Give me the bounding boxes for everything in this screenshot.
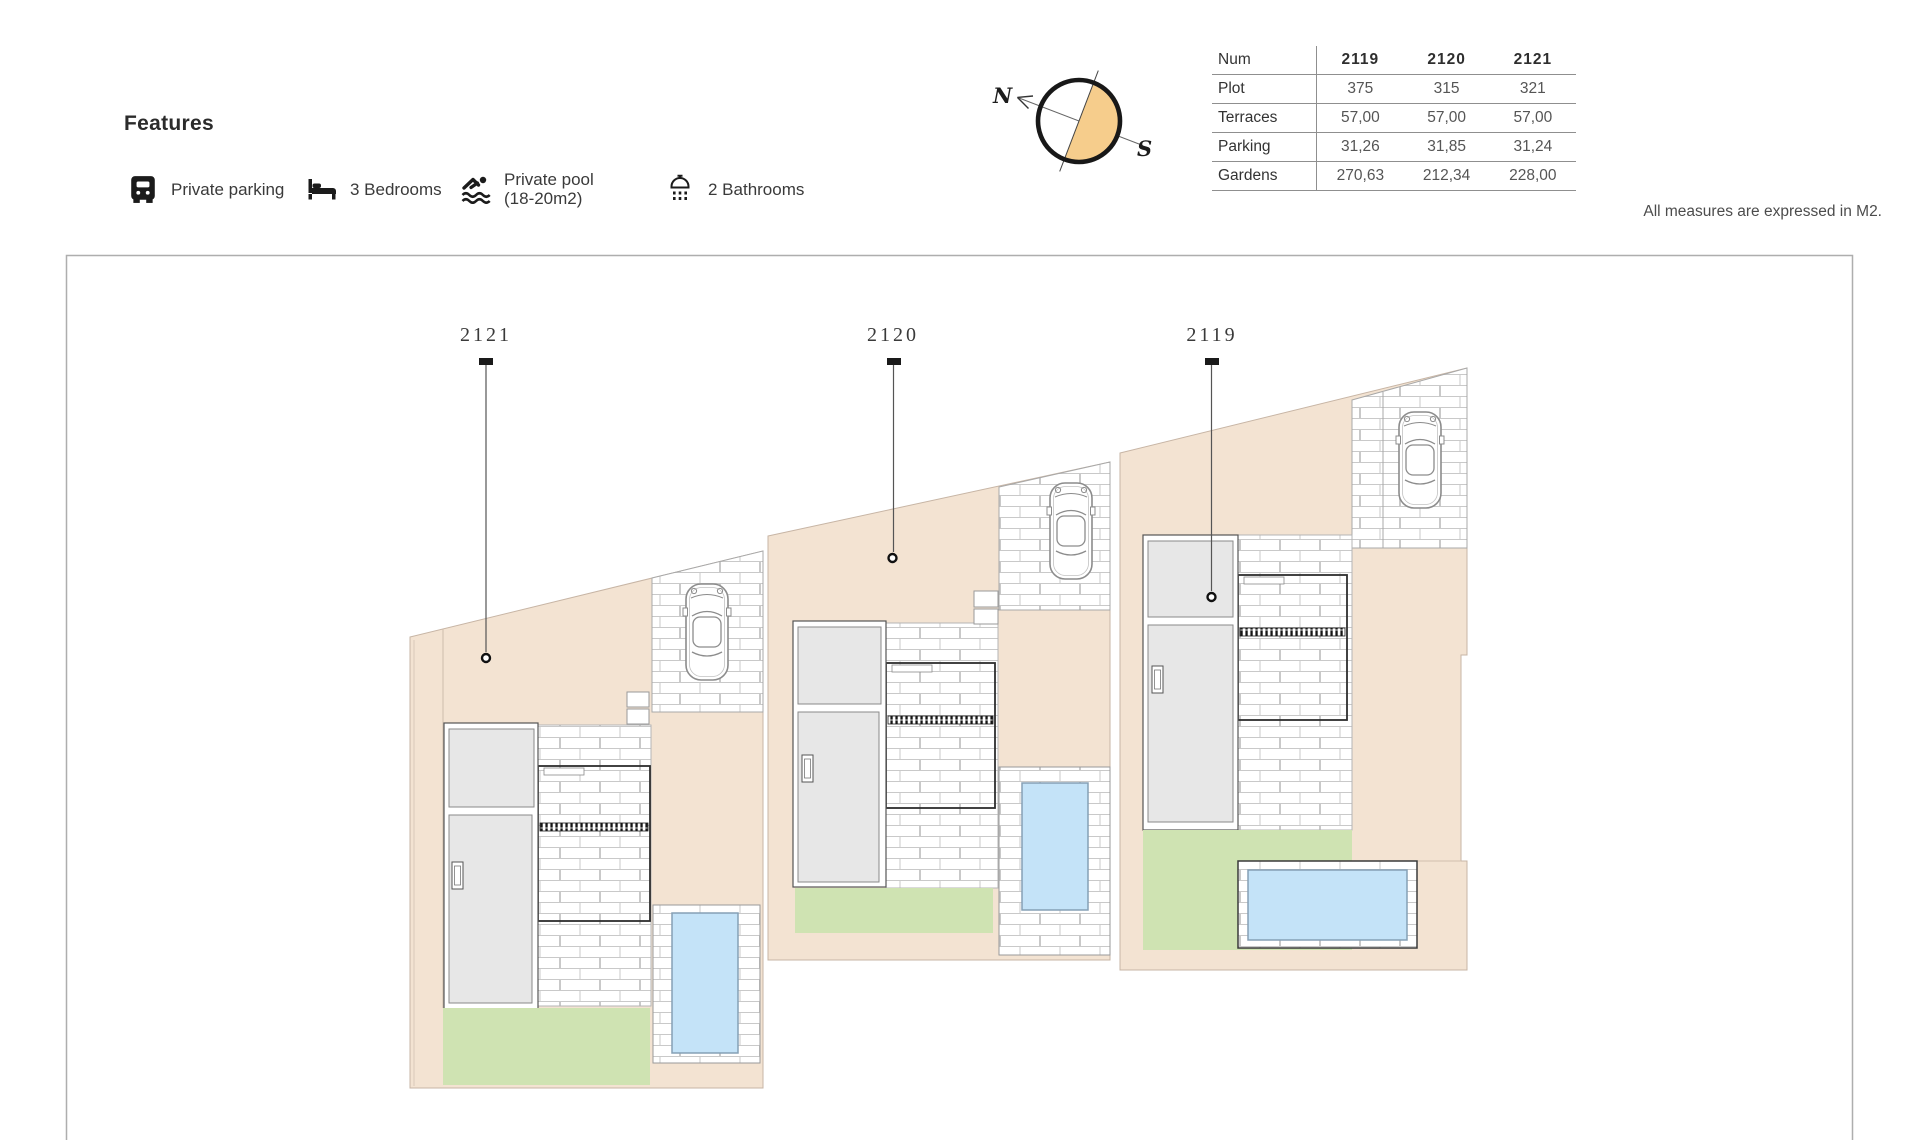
plot-2120-roof-detail: [892, 665, 932, 672]
measures-note: All measures are expressed in M2.: [1560, 203, 1882, 221]
plot-2119-leader-tick: [1205, 358, 1219, 365]
parking-icon: [128, 174, 158, 204]
swimmer-icon: [461, 174, 491, 204]
plot-2121-leader-tick: [479, 358, 493, 365]
shower-icon: [665, 174, 695, 204]
plot-2120-car-icon: [1047, 483, 1095, 579]
plot-2121-pool: [672, 913, 738, 1053]
row-label: Gardens: [1212, 162, 1317, 191]
feature-bathrooms: 2 Bathrooms: [665, 170, 804, 208]
table-col-2119: 2119: [1317, 46, 1404, 75]
table-header-row: Num 2119 2120 2121: [1212, 46, 1576, 75]
feature-label-line1: Private pool: [504, 170, 594, 189]
feature-label: 3 Bedrooms: [350, 180, 442, 199]
plot-2119-label: 2119: [1186, 324, 1237, 346]
plot-2121-roof-detail: [544, 768, 584, 775]
site-plan: 2121 2120 2119: [0, 0, 1920, 1140]
feature-private-parking: Private parking: [128, 170, 284, 208]
compass-north-label: N: [992, 83, 1013, 108]
feature-label: 2 Bathrooms: [708, 180, 804, 199]
cell: 57,00: [1490, 104, 1576, 133]
plot-2119-leader-marker: [1208, 593, 1216, 601]
cell: 31,85: [1403, 133, 1489, 162]
plot-2120-label: 2120: [867, 324, 919, 346]
plot-2121-lawn: [443, 1008, 650, 1085]
plot-2119-car-icon: [1396, 412, 1444, 508]
plot-2121: [410, 551, 763, 1088]
cell: 228,00: [1490, 162, 1576, 191]
bed-icon: [307, 174, 337, 204]
features-title: Features: [124, 112, 214, 136]
plot-2120-building-upper: [798, 627, 881, 704]
plot-2121-leader-marker: [482, 654, 490, 662]
plot-2120-building-lower: [798, 712, 879, 882]
feature-label-line2: (18-20m2): [504, 189, 582, 208]
table-row: Terraces 57,00 57,00 57,00: [1212, 104, 1576, 133]
plot-2120-roof-terrace: [886, 663, 995, 808]
row-label: Plot: [1212, 75, 1317, 104]
cell: 57,00: [1403, 104, 1489, 133]
plot-2121-building-upper: [449, 729, 534, 807]
plot-2120-pool: [1022, 783, 1088, 910]
table-row: Parking 31,26 31,85 31,24: [1212, 133, 1576, 162]
table-col-2120: 2120: [1403, 46, 1489, 75]
compass-rose: N S: [980, 50, 1180, 200]
plot-2120-leader-marker: [889, 554, 897, 562]
plot-2121-pergola-band: [540, 823, 648, 831]
plot-2119-pool: [1248, 870, 1407, 940]
plot-2119-pergola-band: [1240, 628, 1345, 636]
plot-2121-callout: 2121: [460, 324, 512, 662]
plot-2119-building-upper: [1148, 541, 1233, 617]
feature-private-pool: Private pool (18-20m2): [461, 170, 594, 208]
plot-2120-leader-tick: [887, 358, 901, 365]
cell: 31,24: [1490, 133, 1576, 162]
row-label: Terraces: [1212, 104, 1317, 133]
cell: 315: [1403, 75, 1489, 104]
plot-2120-lawn: [795, 888, 993, 933]
feature-label: Private pool (18-20m2): [504, 170, 594, 208]
plot-2121-label: 2121: [460, 324, 512, 346]
cell: 270,63: [1317, 162, 1404, 191]
table-col-2121: 2121: [1490, 46, 1576, 75]
plot-spec-table: Num 2119 2120 2121 Plot 375 315 321 Terr…: [1212, 46, 1576, 191]
table-row: Plot 375 315 321: [1212, 75, 1576, 104]
plot-2121-utility-box: [627, 709, 649, 724]
plot-2120-utility-box: [974, 591, 998, 607]
plot-2119-roof-terrace: [1238, 575, 1347, 720]
feature-label: Private parking: [171, 180, 284, 199]
cell: 212,34: [1403, 162, 1489, 191]
plot-2121-utility-box: [627, 692, 649, 707]
feature-bedrooms: 3 Bedrooms: [307, 170, 442, 208]
cell: 321: [1490, 75, 1576, 104]
cell: 375: [1317, 75, 1404, 104]
table-corner-header: Num: [1212, 46, 1317, 75]
plot-2120: [768, 462, 1110, 960]
plot-2119: [1120, 368, 1467, 970]
table-row: Gardens 270,63 212,34 228,00: [1212, 162, 1576, 191]
plot-2120-utility-box: [974, 609, 998, 624]
cell: 31,26: [1317, 133, 1404, 162]
plot-2121-roof-terrace: [538, 766, 650, 921]
plot-2120-pergola-band: [888, 716, 993, 724]
cell: 57,00: [1317, 104, 1404, 133]
row-label: Parking: [1212, 133, 1317, 162]
plot-2119-building-lower: [1148, 625, 1233, 822]
plot-2121-car-icon: [683, 584, 731, 680]
plot-2121-building-lower: [449, 815, 532, 1003]
compass-south-label: S: [1137, 136, 1152, 161]
plot-2119-roof-detail: [1244, 577, 1284, 584]
